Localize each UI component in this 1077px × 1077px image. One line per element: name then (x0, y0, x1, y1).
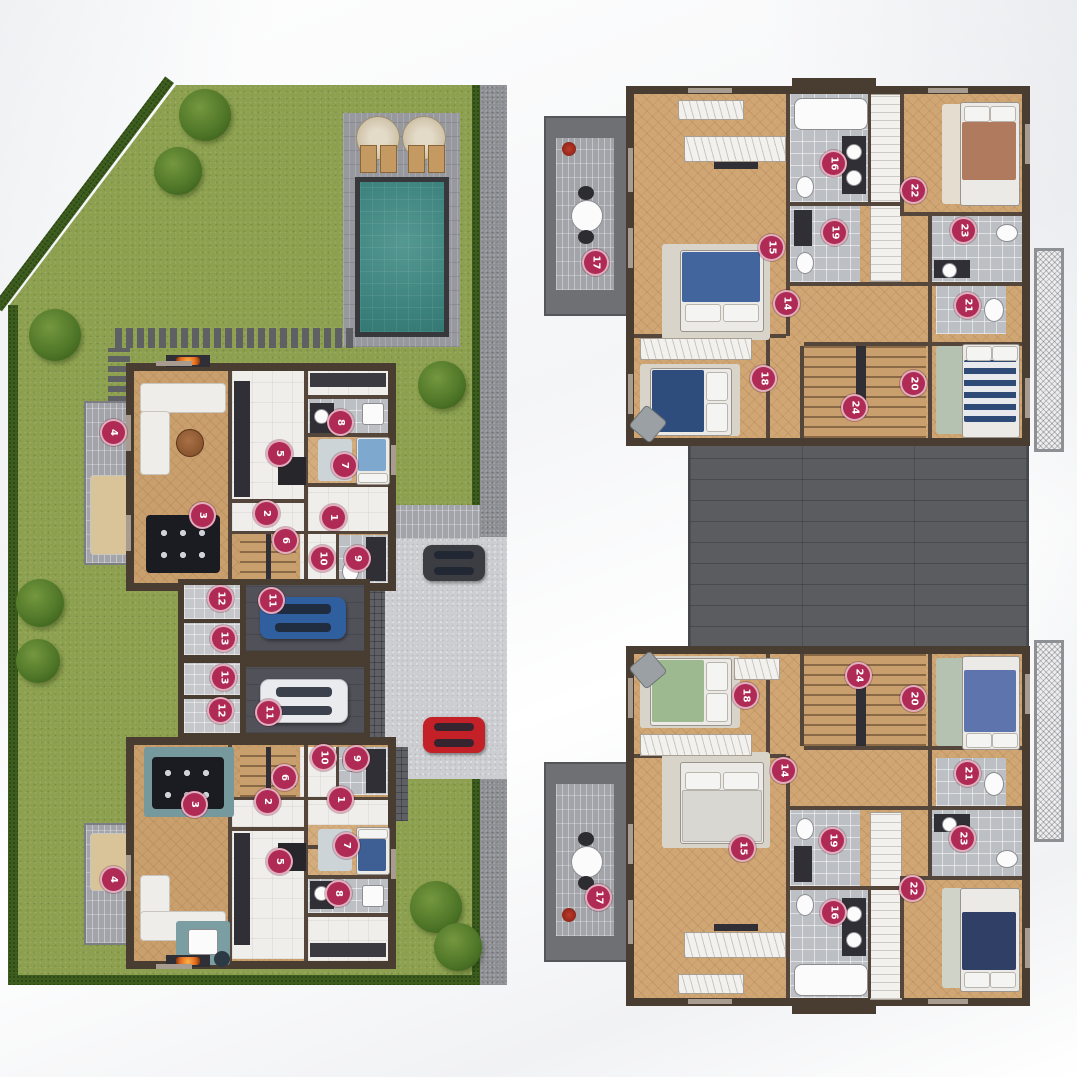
dresser (684, 932, 786, 958)
room-number-badge: 5 (266, 848, 293, 875)
window (688, 88, 732, 93)
terrace-bench (90, 475, 128, 555)
balcony-top-right (1034, 248, 1064, 452)
vanity-counter (794, 210, 812, 246)
hedge-right-upper (472, 85, 480, 505)
room-number-badge: 18 (732, 682, 759, 709)
inner-wall (928, 216, 932, 438)
bed-pillow (358, 473, 388, 483)
window (628, 374, 633, 414)
garden-path (115, 328, 353, 348)
tree-icon (16, 639, 60, 683)
room-number-badge: 12 (207, 585, 234, 612)
bed-blanket (682, 252, 760, 302)
patio-chair (578, 186, 594, 200)
bed-pillow (990, 972, 1016, 988)
sink-basin (846, 906, 862, 922)
car-rear-window (275, 623, 330, 632)
bed-pillow (706, 403, 728, 432)
inner-wall (786, 756, 790, 998)
room-number-badge: 8 (327, 409, 354, 436)
inner-wall (868, 890, 871, 998)
inner-wall (800, 346, 804, 438)
armchair (214, 951, 230, 967)
inner-wall (900, 212, 1022, 216)
toilet (796, 252, 814, 274)
window (126, 515, 131, 551)
room-number-badge: 3 (181, 791, 208, 818)
tree-icon (154, 147, 202, 195)
sofa (140, 383, 226, 413)
inner-wall (790, 202, 900, 206)
bed-blanket (682, 790, 762, 842)
room-number-badge: 5 (266, 440, 293, 467)
room-number-badge: 2 (253, 500, 280, 527)
window (928, 999, 968, 1004)
patio-table (571, 846, 603, 878)
car-rear-window (276, 706, 331, 715)
bed-pillow (723, 304, 759, 322)
kitchen-appliances (310, 943, 386, 957)
room-number-badge: 7 (331, 452, 358, 479)
room-number-badge: 14 (773, 290, 800, 317)
bed-pillow (723, 772, 759, 790)
room-number-badge: 18 (750, 365, 777, 392)
tree-icon (179, 89, 231, 141)
linen-closet (870, 94, 902, 282)
tree-icon (16, 579, 64, 627)
room-number-badge: 4 (100, 419, 127, 446)
bed-blanket (964, 360, 1016, 422)
room-number-badge: 21 (954, 292, 981, 319)
sidewalk (480, 85, 507, 985)
room-number-badge: 17 (585, 884, 612, 911)
flower-pot (562, 142, 576, 156)
wardrobe (640, 734, 752, 756)
bed-pillow (990, 106, 1016, 122)
bed-pillow (358, 829, 388, 839)
patio-table (571, 200, 603, 232)
sink-basin (942, 263, 957, 278)
car-windshield (434, 551, 474, 559)
sun-lounger (408, 145, 425, 173)
tv-unit (714, 924, 758, 931)
coffee-table (176, 429, 204, 457)
room-number-badge: 19 (821, 219, 848, 246)
window (1025, 928, 1030, 968)
room-number-badge: 1 (320, 504, 347, 531)
inner-wall (336, 533, 339, 583)
hedge-bottom (8, 975, 480, 985)
bed-pillow (992, 346, 1018, 361)
car-rear-window (434, 567, 474, 575)
window (156, 964, 192, 969)
room-number-badge: 13 (210, 625, 237, 652)
vanity-counter (794, 846, 812, 882)
tree-icon (418, 361, 466, 409)
room-number-badge: 21 (954, 760, 981, 787)
sofa (140, 411, 170, 475)
upper-plan: 1716221923151421182024182420142115192317… (538, 78, 1068, 998)
kitchen-counter (234, 833, 250, 945)
wardrobe (678, 100, 744, 120)
toilet (796, 818, 814, 840)
room-number-badge: 9 (344, 545, 371, 572)
room-number-badge: 6 (271, 764, 298, 791)
tv-unit (714, 162, 758, 169)
washing-machine (362, 885, 384, 907)
roof-tab (792, 78, 876, 88)
room-number-badge: 12 (207, 697, 234, 724)
toilet (996, 850, 1018, 868)
inner-wall (232, 827, 308, 831)
room-number-badge: 20 (900, 685, 927, 712)
dresser (684, 136, 786, 162)
swimming-pool (355, 177, 449, 337)
room-number-badge: 23 (949, 825, 976, 852)
inner-wall (790, 282, 1022, 286)
sun-lounger (360, 145, 377, 173)
room-number-badge: 22 (899, 875, 926, 902)
window (1025, 378, 1030, 418)
inner-wall (928, 654, 932, 876)
inner-wall (308, 395, 388, 399)
window (391, 849, 396, 879)
tree-icon (434, 923, 482, 971)
inner-wall (308, 913, 388, 917)
room-number-badge: 2 (254, 788, 281, 815)
wardrobe (640, 338, 752, 360)
patio-chair (578, 230, 594, 244)
room-number-badge: 9 (343, 745, 370, 772)
car-windshield (434, 723, 474, 731)
bed-blanket (358, 839, 386, 871)
bed-pillow (685, 772, 721, 790)
window (628, 824, 633, 864)
bed-pillow (685, 304, 721, 322)
bed-pillow (706, 693, 728, 722)
inner-wall (868, 94, 871, 202)
window (688, 999, 732, 1004)
room-number-badge: 1 (327, 786, 354, 813)
inner-wall (790, 806, 1022, 810)
window (126, 855, 131, 891)
window (628, 678, 633, 718)
bed-pillow (964, 106, 990, 122)
bed-blanket (964, 670, 1016, 732)
linen-closet (870, 812, 902, 1000)
sink-basin (846, 144, 862, 160)
kitchen-counter (234, 381, 250, 497)
room-number-badge: 17 (582, 249, 609, 276)
room-number-badge: 16 (820, 899, 847, 926)
bed-pillow (706, 372, 728, 401)
window (628, 900, 633, 944)
bed-pillow (706, 662, 728, 691)
sun-lounger (380, 145, 397, 173)
bed-blanket (962, 122, 1016, 180)
toilet (984, 298, 1004, 322)
coffee-table (188, 929, 218, 955)
toilet (796, 176, 814, 198)
car-rear-window (434, 739, 474, 747)
floor-plan-sheet: 4358721610912111313121110962135784 (0, 0, 1077, 1077)
room-number-badge: 11 (258, 587, 285, 614)
window (628, 228, 633, 268)
room-number-badge: 15 (729, 835, 756, 862)
room-number-badge: 4 (100, 866, 127, 893)
sun-lounger (428, 145, 445, 173)
washing-machine (362, 403, 384, 425)
bed-pillow (966, 733, 992, 748)
roof-section (688, 444, 1029, 650)
room-number-badge: 10 (310, 744, 337, 771)
room-number-badge: 22 (900, 177, 927, 204)
room-number-badge: 13 (210, 664, 237, 691)
bed-pillow (964, 972, 990, 988)
window (156, 361, 192, 366)
hedge-left (8, 305, 18, 985)
bathtub (794, 98, 868, 130)
inner-wall (790, 886, 900, 890)
room-number-badge: 24 (845, 662, 872, 689)
entry-walk-unit-a (388, 505, 480, 539)
kitchen-appliances (310, 373, 386, 387)
bed-blanket (962, 912, 1016, 970)
car-red (423, 717, 485, 753)
site-plan: 4358721610912111313121110962135784 (8, 85, 507, 985)
stair-rail (266, 533, 271, 583)
room-number-badge: 15 (758, 234, 785, 261)
inner-wall (800, 654, 804, 746)
patio-chair (578, 832, 594, 846)
unit-a-entry (308, 485, 388, 533)
window (928, 88, 968, 93)
tree-icon (29, 309, 81, 361)
bed-pillow (966, 346, 992, 361)
inner-wall (232, 531, 388, 534)
desk (734, 658, 780, 680)
room-number-badge: 8 (325, 880, 352, 907)
toilet (996, 224, 1018, 242)
room-number-badge: 24 (841, 394, 868, 421)
window (628, 148, 633, 192)
toilet (796, 894, 814, 916)
bed-blanket (358, 439, 386, 471)
sink-basin (846, 932, 862, 948)
room-number-badge: 7 (333, 832, 360, 859)
toilet (984, 772, 1004, 796)
room-number-badge: 10 (309, 545, 336, 572)
room-number-badge: 20 (900, 370, 927, 397)
room-number-badge: 11 (255, 699, 282, 726)
room-number-badge: 3 (189, 502, 216, 529)
room-number-badge: 16 (820, 150, 847, 177)
car-windshield (276, 687, 331, 697)
room-number-badge: 6 (272, 527, 299, 554)
sink-basin (846, 170, 862, 186)
bathtub (794, 964, 868, 996)
bed-pillow (992, 733, 1018, 748)
room-number-badge: 14 (770, 757, 797, 784)
window (1025, 674, 1030, 714)
wardrobe (678, 974, 744, 994)
car-dark (423, 545, 485, 581)
inner-wall (308, 875, 388, 879)
room-number-badge: 19 (819, 827, 846, 854)
window (1025, 124, 1030, 164)
room-number-badge: 23 (950, 217, 977, 244)
roof-tab (792, 1004, 876, 1014)
balcony-bottom-right (1034, 640, 1064, 842)
place-settings (156, 525, 210, 563)
inner-wall (228, 371, 232, 583)
flower-pot (562, 908, 576, 922)
window (391, 445, 396, 475)
